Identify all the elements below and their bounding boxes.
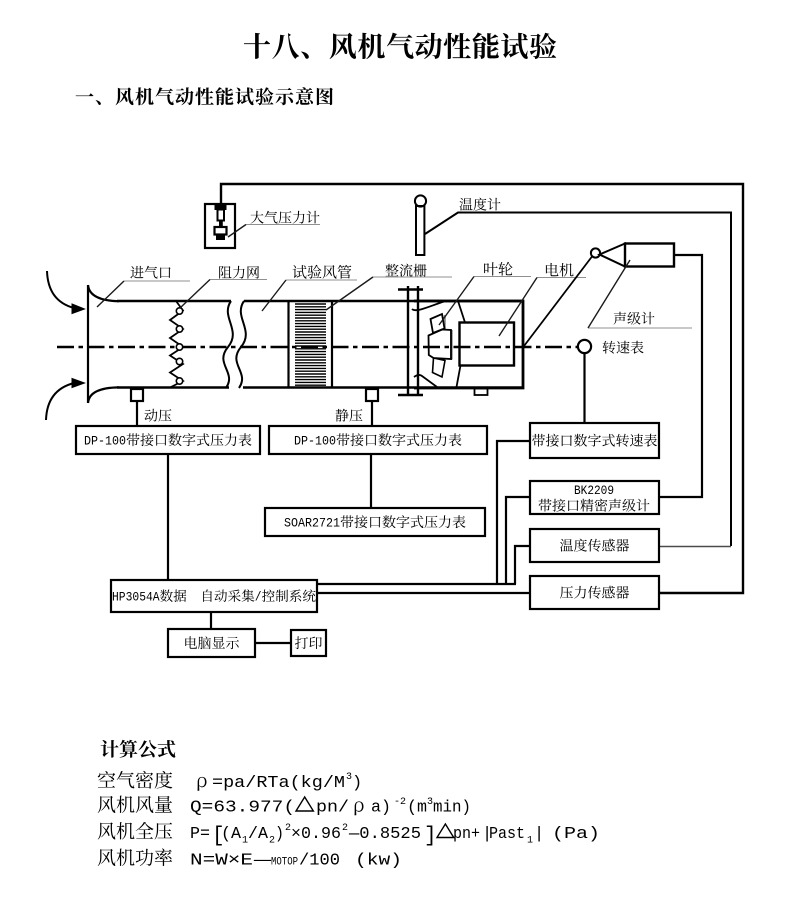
svg-text:×0.96: ×0.96 xyxy=(291,825,341,844)
svg-text:(m: (m xyxy=(407,799,427,818)
svg-text:P=: P= xyxy=(190,825,210,844)
svg-text:/A: /A xyxy=(248,825,269,844)
svg-text:]: ] xyxy=(424,825,437,848)
svg-text:(Pa): (Pa) xyxy=(552,825,600,844)
svg-text:Past: Past xyxy=(489,825,525,844)
svg-text:pn/: pn/ xyxy=(316,799,349,818)
svg-text:(kw): (kw) xyxy=(355,852,402,871)
svg-text:/100: /100 xyxy=(299,852,340,871)
svg-text:pn+: pn+ xyxy=(453,825,480,844)
svg-text:—: — xyxy=(252,852,272,871)
svg-text:2: 2 xyxy=(342,823,348,834)
svg-text:HP3054A: HP3054A xyxy=(112,589,160,604)
svg-text:a): a) xyxy=(371,799,391,818)
svg-text:): ) xyxy=(352,774,362,793)
svg-text:-2: -2 xyxy=(394,797,406,808)
svg-text:BK2209: BK2209 xyxy=(574,483,614,498)
svg-text:DP-100: DP-100 xyxy=(294,434,336,449)
svg-text:=pa/RTa(kg/M: =pa/RTa(kg/M xyxy=(212,774,345,793)
svg-text:): ) xyxy=(275,825,284,844)
svg-text:DP-100: DP-100 xyxy=(84,434,126,449)
svg-text:MOTOP: MOTOP xyxy=(271,857,298,869)
svg-text:(A: (A xyxy=(221,825,242,844)
svg-text:SOAR2721: SOAR2721 xyxy=(284,516,340,531)
svg-text:/: / xyxy=(255,589,262,604)
svg-text:—0.8525: —0.8525 xyxy=(348,825,421,844)
svg-text:Q=63.977(: Q=63.977( xyxy=(190,799,295,818)
svg-text:min): min) xyxy=(433,799,471,818)
svg-text:|: | xyxy=(534,825,544,844)
svg-text:N=W×E: N=W×E xyxy=(190,852,253,871)
svg-text:1: 1 xyxy=(527,836,533,847)
